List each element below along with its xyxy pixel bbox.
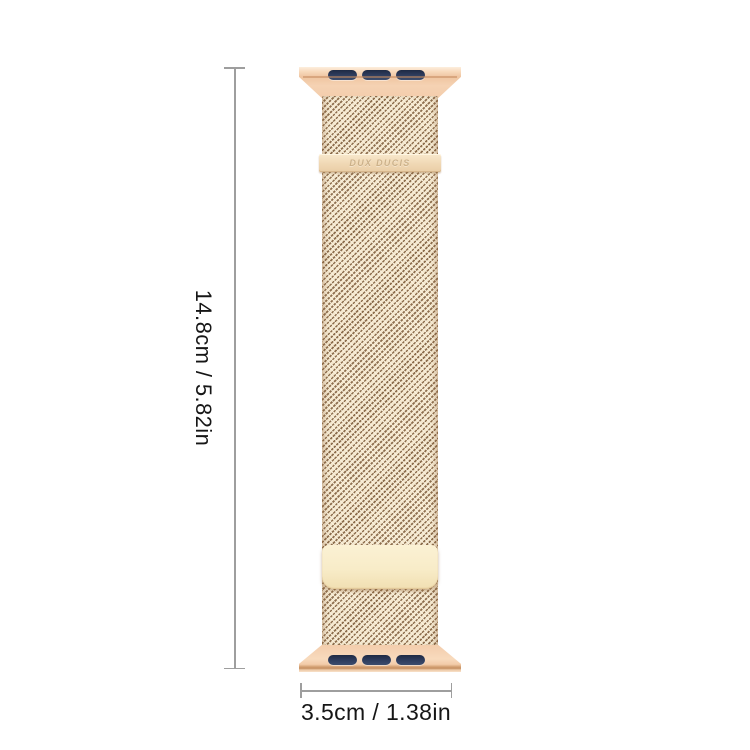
brand-engraving: DUX DUCIS (349, 158, 410, 168)
band-top-lug-connector (299, 67, 461, 98)
height-dimension-label: 14.8cm / 5.82in (190, 290, 216, 446)
band-bottom-lug-connector (299, 645, 461, 672)
height-dimension-top-tick (224, 67, 245, 69)
width-dimension-line (300, 690, 452, 692)
connector-slot-icon (362, 70, 391, 80)
connector-slot-icon (328, 70, 357, 80)
width-dimension-right-tick (451, 683, 453, 698)
connector-edge-shade (303, 76, 457, 78)
magnetic-clasp-plate (322, 545, 438, 589)
connector-slot-icon (396, 70, 425, 80)
width-dimension-label: 3.5cm / 1.38in (301, 699, 451, 726)
connector-slot-icon (396, 655, 425, 665)
product-dimension-image: 14.8cm / 5.82in 3.5cm / 1.38in DUX DUCIS (0, 0, 750, 750)
connector-slot-icon (328, 655, 357, 665)
width-dimension-left-tick (300, 683, 302, 698)
brand-slide-clasp: DUX DUCIS (319, 154, 441, 172)
connector-slot-icon (362, 655, 391, 665)
height-dimension-bottom-tick (224, 668, 245, 670)
height-dimension-line (234, 67, 236, 669)
